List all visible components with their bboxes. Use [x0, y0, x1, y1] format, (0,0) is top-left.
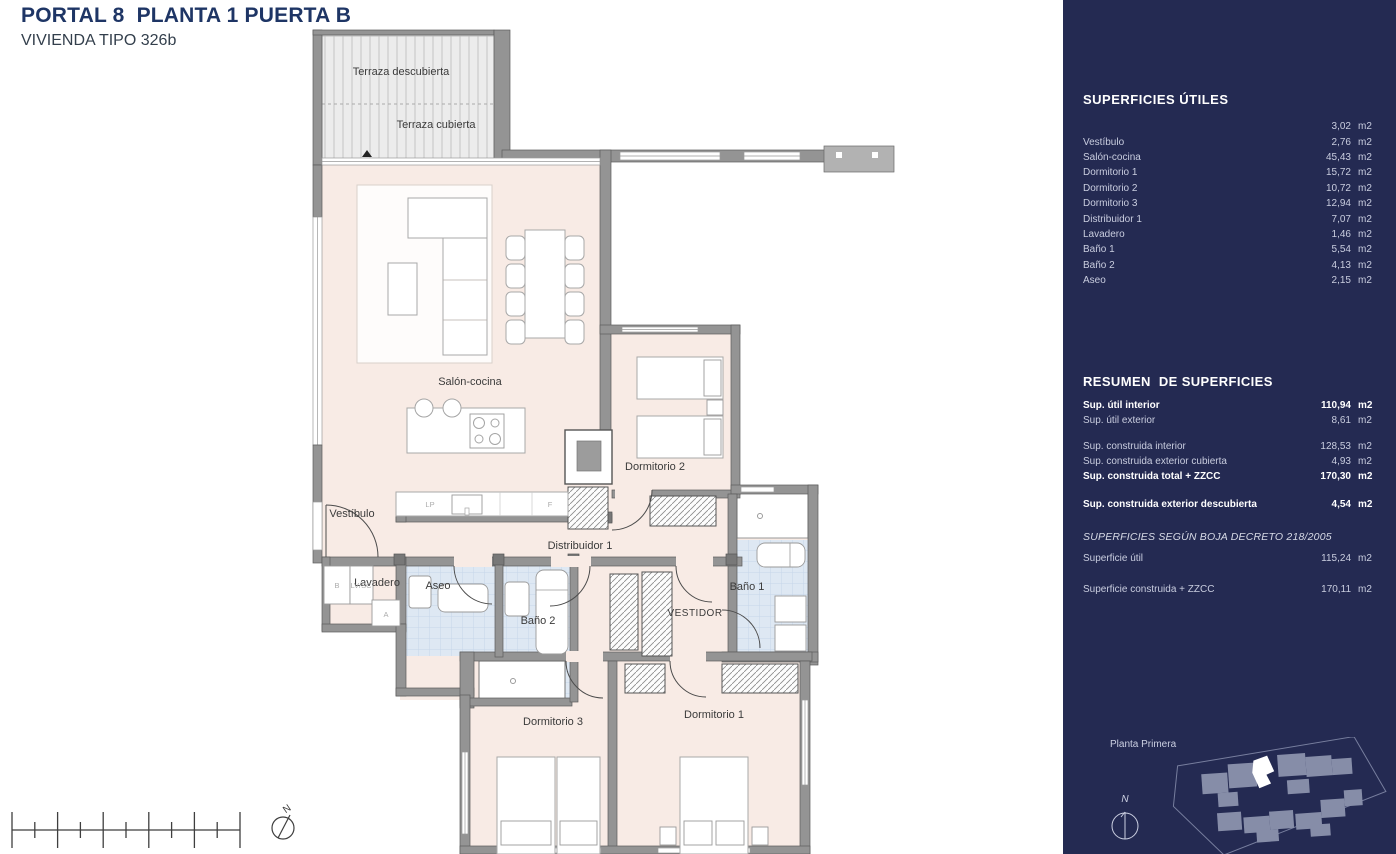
page-subtitle: VIVIENDA TIPO 326b: [21, 32, 351, 50]
boja-row: Superficie útil115,24m2: [1083, 551, 1378, 566]
terrace: [313, 30, 510, 165]
room-label-bano1: Baño 1: [730, 581, 765, 593]
sidebar-north-letter: N: [1121, 794, 1129, 805]
laundry-label-lvsc: LV/SC: [350, 581, 372, 590]
room-label-aseo: Aseo: [425, 580, 450, 592]
resumen-row: Sup. construida exterior descubierta4,54…: [1083, 497, 1378, 512]
room-label-dorm1: Dormitorio 1: [684, 709, 744, 721]
laundry-label-a: A: [383, 610, 388, 619]
resumen-row: Sup. construida interior128,53m2: [1083, 439, 1378, 454]
resumen-row: Sup. construida exterior cubierta4,93m2: [1083, 454, 1378, 469]
boja-title: SUPERFICIES SEGÚN BOJA DECRETO 218/2005: [1083, 531, 1332, 543]
north-letter: N: [281, 803, 293, 816]
superficies-row: Baño 24,13m2: [1083, 258, 1378, 273]
laundry-label-b: B: [334, 581, 339, 590]
superficies-row: Lavadero1,46m2: [1083, 227, 1378, 242]
superficies-row: Aseo2,15m2: [1083, 273, 1378, 288]
room-label-salon: Salón-cocina: [438, 376, 502, 388]
room-label-bano2: Baño 2: [521, 615, 556, 627]
kitchen-label-f: F: [548, 500, 553, 509]
superficies-utiles-title: SUPERFICIES ÚTILES: [1083, 92, 1229, 107]
room-label-terraza-cubierta: Terraza cubierta: [397, 119, 477, 131]
page-header: PORTAL 8 PLANTA 1 PUERTA B VIVIENDA TIPO…: [21, 4, 351, 50]
boja-row: Superficie construida + ZZCC170,11m2: [1083, 582, 1378, 597]
resumen-row: Sup. construida total + ZZCC170,30m2: [1083, 469, 1378, 484]
superficies-row: Dormitorio 115,72m2: [1083, 165, 1378, 180]
boja-table: Superficie útil115,24m2 Superficie const…: [1083, 551, 1378, 613]
resumen-row: Sup. útil exterior8,61m2: [1083, 413, 1378, 428]
room-label-dorm3: Dormitorio 3: [523, 716, 583, 728]
superficies-row: Distribuidor 17,07m2: [1083, 211, 1378, 226]
room-label-distribuidor: Distribuidor 1: [548, 540, 613, 552]
scale-bar: [12, 812, 240, 848]
north-compass: N: [272, 803, 294, 839]
page-title: PORTAL 8 PLANTA 1 PUERTA B: [21, 4, 351, 28]
superficies-row: Vestíbulo2,76m2: [1083, 134, 1378, 149]
superficies-row: Salón-cocina45,43m2: [1083, 150, 1378, 165]
room-label-vestibulo: Vestíbulo: [329, 508, 374, 520]
sidebar: SUPERFICIES ÚTILES 3,02m2 Vestíbulo2,76m…: [1063, 0, 1396, 854]
resumen-table: Sup. útil interior110,94m2 Sup. útil ext…: [1083, 398, 1378, 512]
sidebar-north-compass: N: [1107, 792, 1143, 852]
room-label-vestidor: VESTIDOR: [667, 608, 722, 619]
room-label-terraza-descubierta: Terraza descubierta: [353, 66, 450, 78]
keymap-siteplan: [1158, 737, 1393, 854]
room-label-dorm2: Dormitorio 2: [625, 461, 685, 473]
resumen-title: RESUMEN DE SUPERFICIES: [1083, 374, 1273, 389]
superficies-row: 3,02m2: [1083, 119, 1378, 134]
superficies-row: Dormitorio 210,72m2: [1083, 181, 1378, 196]
superficies-row: Baño 15,54m2: [1083, 242, 1378, 257]
kitchen-label-lp: LP: [425, 500, 434, 509]
superficies-row: Dormitorio 312,94m2: [1083, 196, 1378, 211]
resumen-row: Sup. útil interior110,94m2: [1083, 398, 1378, 413]
superficies-utiles-table: 3,02m2 Vestíbulo2,76m2 Salón-cocina45,43…: [1083, 119, 1378, 288]
